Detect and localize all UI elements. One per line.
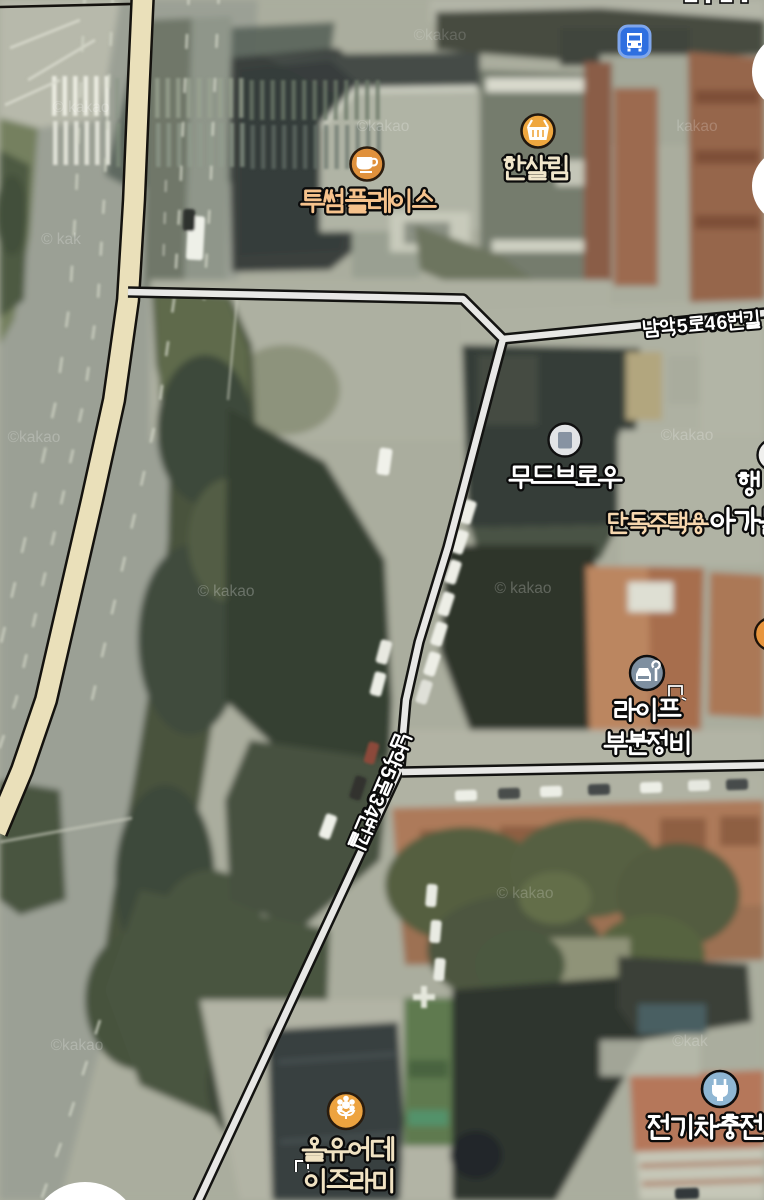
svg-text:kakao: kakao	[676, 118, 717, 135]
svg-text:©kakao: ©kakao	[357, 118, 410, 135]
svg-text:©kakao: ©kakao	[51, 1037, 104, 1054]
svg-text:6: 6	[715, 312, 728, 335]
svg-text:©kakao: ©kakao	[661, 427, 714, 444]
svg-text:© kakao: © kakao	[52, 99, 109, 116]
svg-text:© kakao: © kakao	[496, 885, 553, 902]
svg-text:© kakao: © kakao	[197, 583, 254, 600]
svg-text:© kakao: © kakao	[494, 580, 551, 597]
svg-text:© kak: © kak	[41, 231, 81, 248]
svg-text:©kakao: ©kakao	[8, 429, 61, 446]
svg-text:©kak: ©kak	[672, 1033, 708, 1050]
svg-text:5: 5	[676, 315, 689, 338]
svg-text:©kakao: ©kakao	[414, 27, 467, 44]
